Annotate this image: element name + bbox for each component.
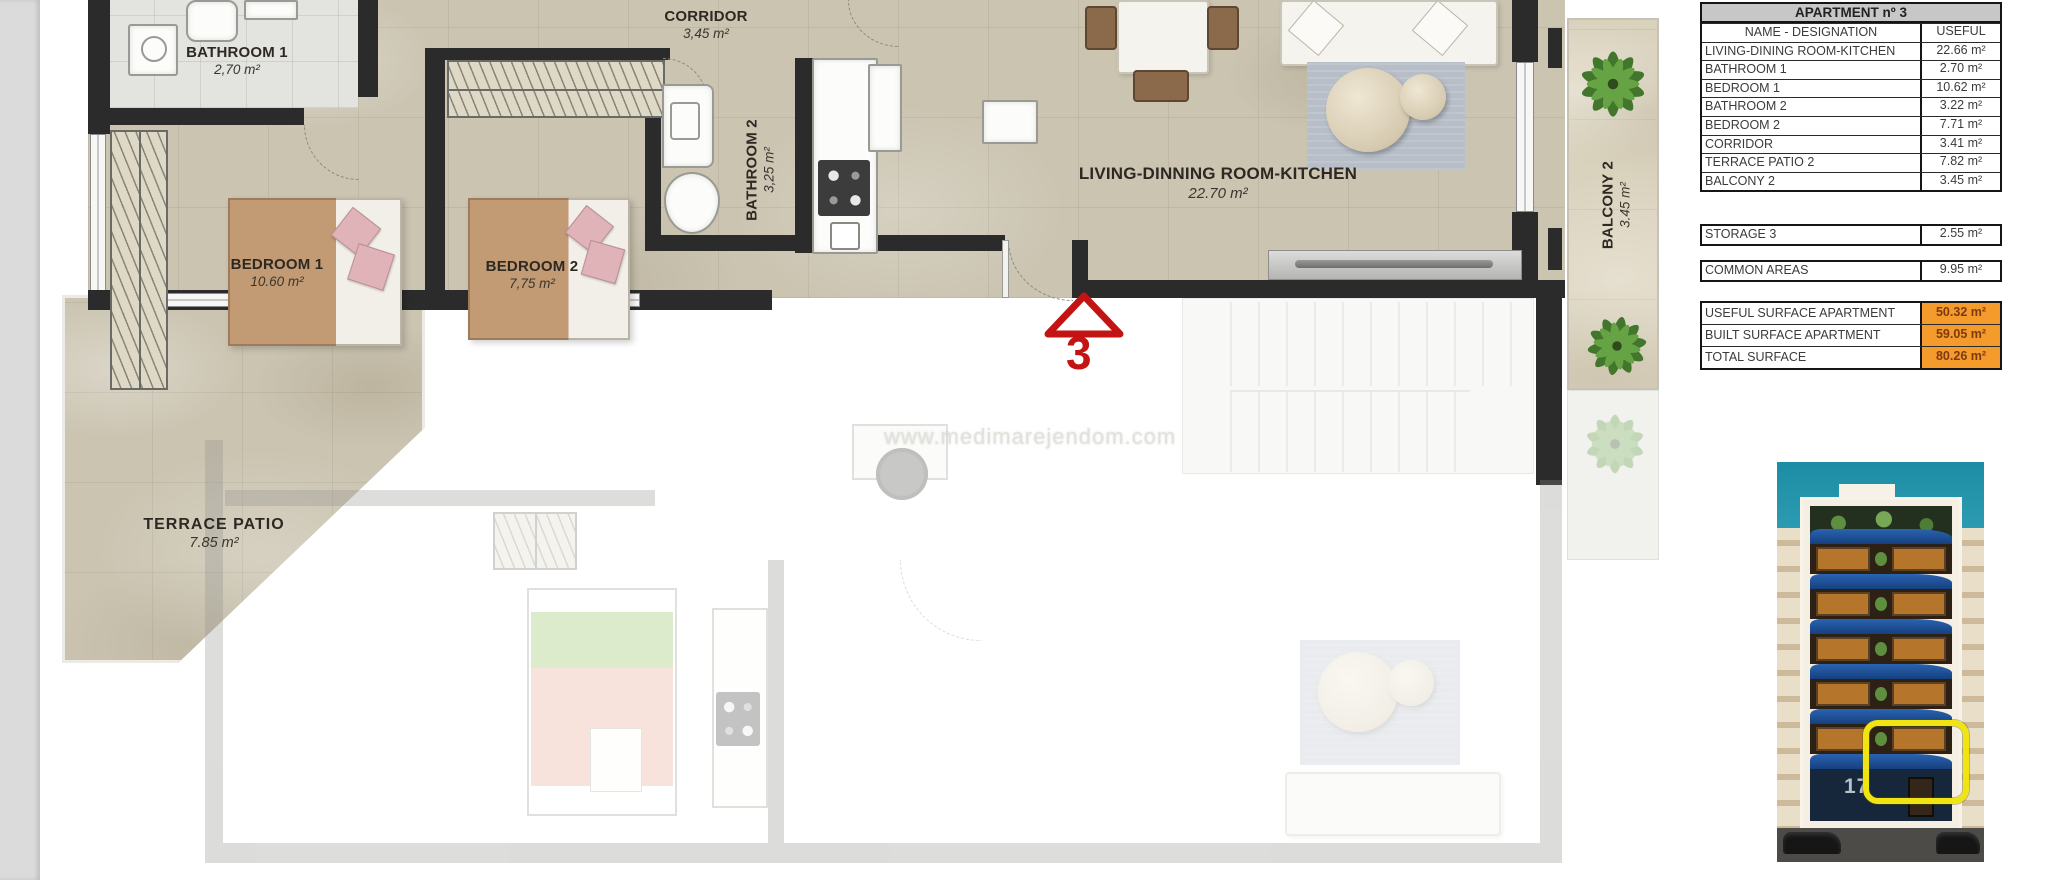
building-floor [1810, 589, 1952, 619]
office-chair [876, 448, 928, 500]
table-row: TERRACE PATIO 27.82 m² [1702, 153, 2000, 172]
room-label-bedroom1: BEDROOM 1 10.60 m² [231, 256, 324, 289]
unit-highlight-box [1863, 720, 1969, 804]
storage-table: STORAGE 32.55 m² [1700, 224, 2002, 246]
table-row: USEFUL SURFACE APARTMENT50.32 m² [1702, 303, 2000, 324]
balcony-band [1810, 574, 1952, 589]
building-floor [1810, 544, 1952, 574]
building-floor [1810, 634, 1952, 664]
roof-terrace [1810, 506, 1952, 544]
building-floor [1810, 679, 1952, 709]
table-row: STORAGE 32.55 m² [1702, 226, 2000, 244]
common-areas-table: COMMON AREAS9.95 m² [1700, 260, 2002, 282]
table-row: CORRIDOR3.41 m² [1702, 135, 2000, 154]
table-row: BEDROOM 27.71 m² [1702, 116, 2000, 135]
room-label-living: LIVING-DINNING ROOM-KITCHEN 22.70 m² [1079, 164, 1357, 202]
built-surface-value: 59.05 m² [1922, 325, 2000, 346]
balcony-band [1810, 664, 1952, 679]
table-row: BUILT SURFACE APARTMENT59.05 m² [1702, 324, 2000, 346]
building-elevation-photo: 17 [1777, 462, 1984, 862]
car [1936, 832, 1980, 854]
table-row: BEDROOM 110.62 m² [1702, 79, 2000, 98]
plant-icon [1578, 308, 1656, 384]
room-label-bathroom2: BATHROOM 2 3,25 m² [744, 119, 777, 221]
car [1783, 832, 1841, 854]
neighbor-building [1777, 528, 1804, 832]
street [1777, 828, 1984, 862]
apartment-table: APARTMENT nº 3 NAME - DESIGNATION USEFUL… [1700, 2, 2002, 192]
plant-icon [1570, 42, 1656, 126]
table-row: BATHROOM 12.70 m² [1702, 60, 2000, 79]
table-header-row: NAME - DESIGNATION USEFUL [1702, 23, 2000, 42]
table-row: BATHROOM 23.22 m² [1702, 97, 2000, 116]
unit-number: 3 [1066, 326, 1092, 380]
plant-icon [1576, 404, 1654, 484]
useful-surface-value: 50.32 m² [1922, 303, 2000, 324]
balcony-band [1810, 619, 1952, 634]
col-header-useful: USEFUL [1922, 24, 2000, 42]
table-title: APARTMENT nº 3 [1702, 4, 2000, 23]
col-header-name: NAME - DESIGNATION [1702, 24, 1922, 42]
room-label-terrace: TERRACE PATIO 7.85 m² [143, 516, 284, 551]
room-label-corridor: CORRIDOR 3,45 m² [664, 8, 747, 41]
total-surface-value: 80.26 m² [1922, 347, 2000, 368]
table-row: TOTAL SURFACE80.26 m² [1702, 346, 2000, 368]
surface-totals-table: USEFUL SURFACE APARTMENT50.32 m² BUILT S… [1700, 301, 2002, 370]
table-row: LIVING-DINING ROOM-KITCHEN22.66 m² [1702, 42, 2000, 61]
room-label-balcony2: BALCONY 2 3.45 m² [1600, 161, 1633, 249]
room-label-bedroom2: BEDROOM 2 7,75 m² [486, 258, 579, 291]
room-label-bathroom1: BATHROOM 1 2,70 m² [186, 44, 288, 77]
floor-plan-page: BATHROOM 1 2,70 m² CORRIDOR 3,45 m² BATH… [0, 0, 2048, 880]
watermark: www.medimarejendom.com [884, 424, 1176, 450]
table-row: BALCONY 23.45 m² [1702, 172, 2000, 191]
table-row: COMMON AREAS9.95 m² [1702, 262, 2000, 280]
